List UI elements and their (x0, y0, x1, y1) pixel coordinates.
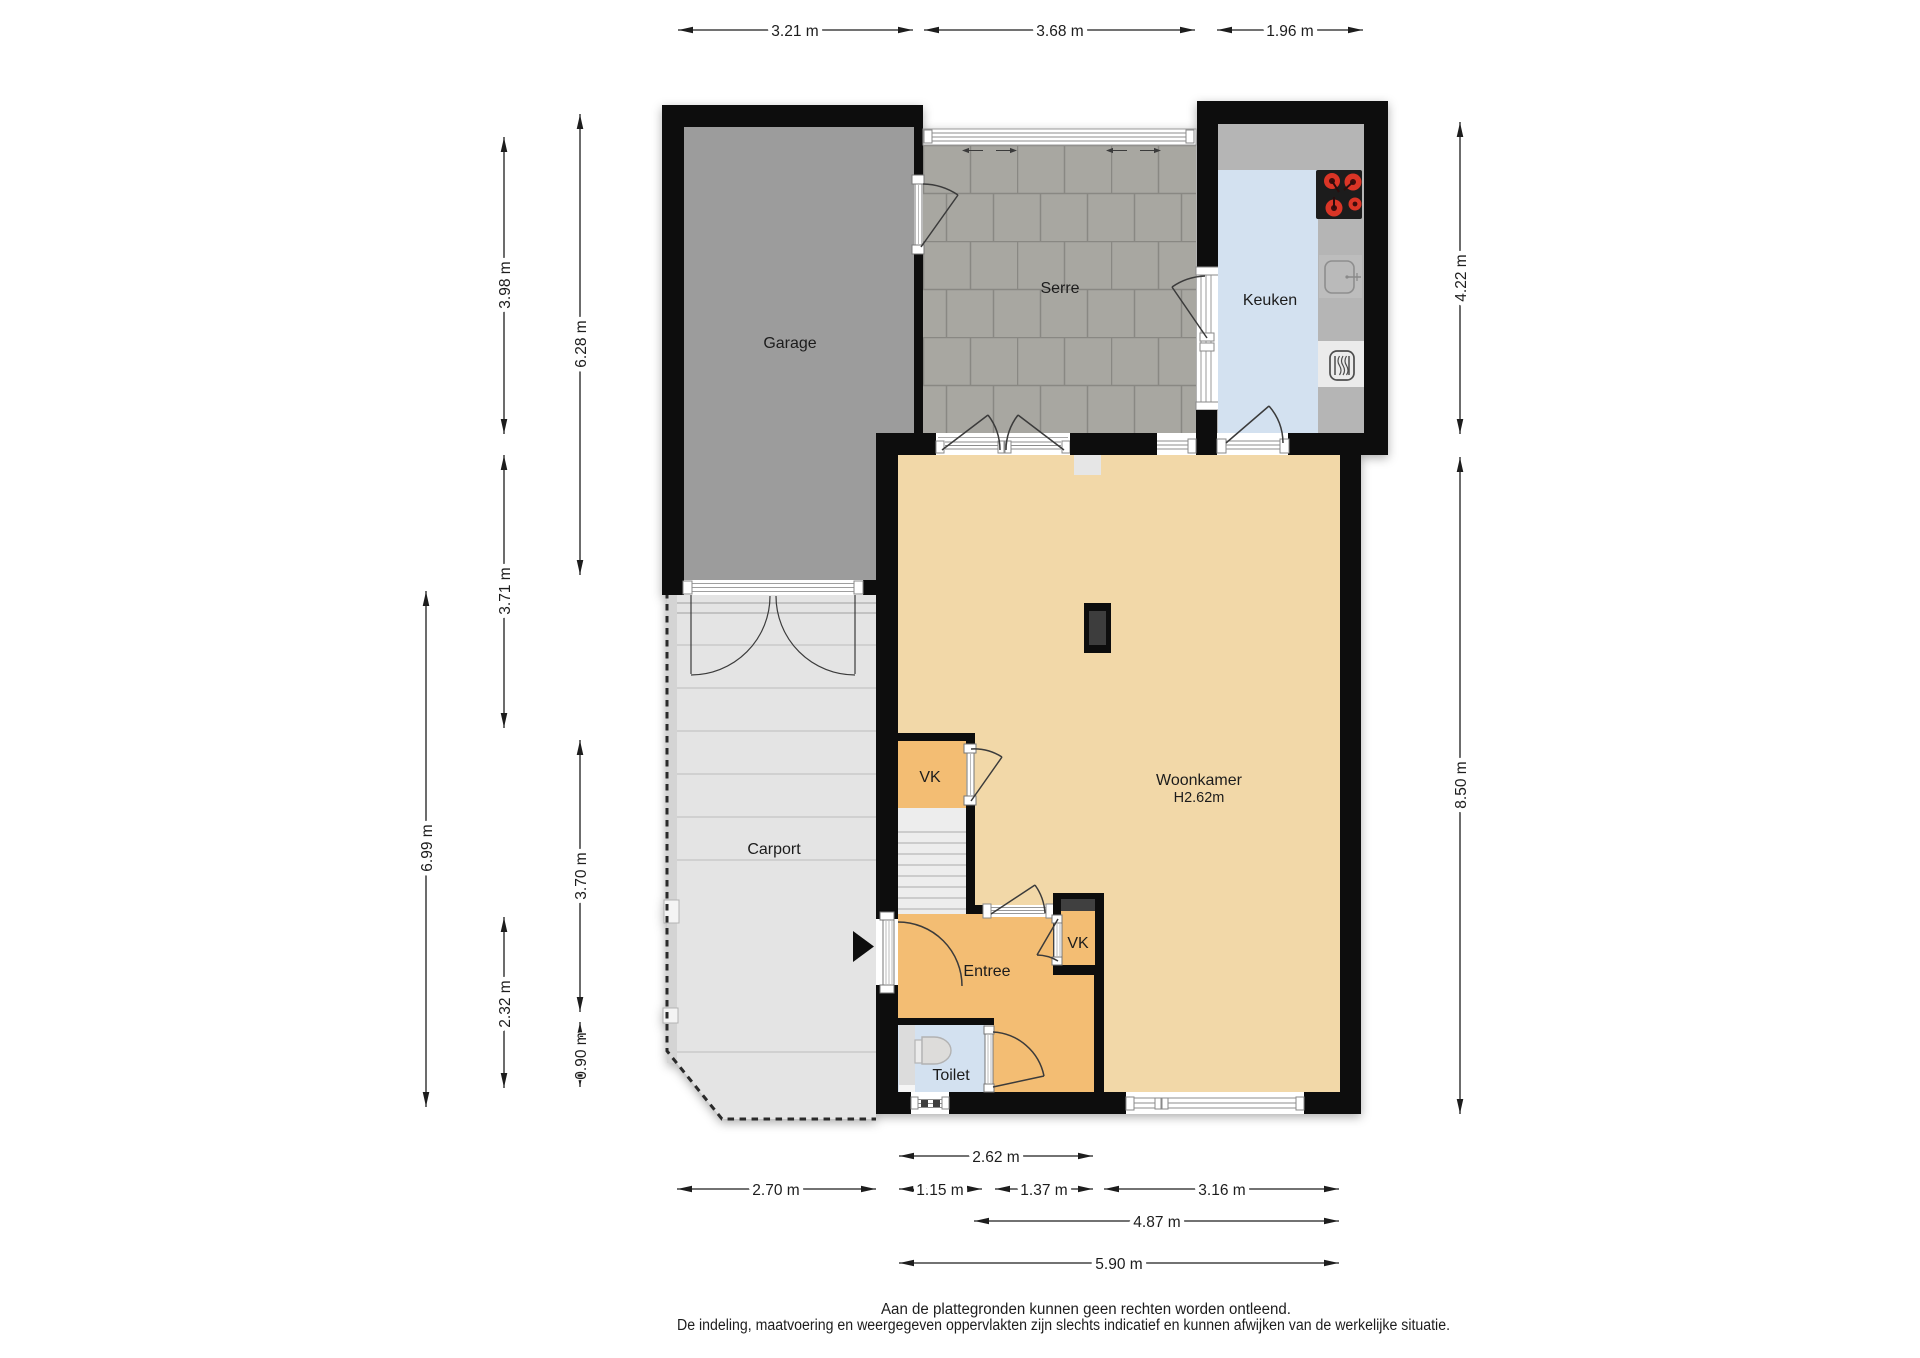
svg-text:Toilet: Toilet (932, 1067, 970, 1084)
svg-text:Aan de plattegronden kunnen ge: Aan de plattegronden kunnen geen rechten… (881, 1301, 1291, 1318)
svg-text:Serre: Serre (1040, 280, 1079, 297)
svg-text:3.68 m: 3.68 m (1036, 23, 1083, 40)
svg-text:2.70 m: 2.70 m (752, 1182, 799, 1199)
svg-text:3.70 m: 3.70 m (573, 852, 590, 899)
svg-text:1.15 m: 1.15 m (916, 1182, 963, 1199)
svg-text:H2.62m: H2.62m (1174, 790, 1225, 806)
svg-text:6.99 m: 6.99 m (419, 824, 436, 871)
svg-text:3.16 m: 3.16 m (1198, 1182, 1245, 1199)
svg-text:3.21 m: 3.21 m (771, 23, 818, 40)
svg-text:6.28 m: 6.28 m (573, 320, 590, 367)
svg-text:8.50 m: 8.50 m (1453, 761, 1470, 808)
svg-text:De indeling, maatvoering en we: De indeling, maatvoering en weergegeven … (677, 1317, 1450, 1334)
svg-text:VK: VK (1067, 935, 1089, 952)
svg-text:Woonkamer: Woonkamer (1156, 772, 1243, 789)
svg-text:5.90 m: 5.90 m (1095, 1256, 1142, 1273)
svg-text:0.90 m: 0.90 m (573, 1032, 590, 1079)
svg-text:2.32 m: 2.32 m (497, 980, 514, 1027)
svg-text:Entree: Entree (963, 963, 1010, 980)
svg-text:3.98 m: 3.98 m (497, 261, 514, 308)
svg-text:3.71 m: 3.71 m (497, 567, 514, 614)
svg-text:VK: VK (919, 769, 941, 786)
svg-text:2.62 m: 2.62 m (972, 1149, 1019, 1166)
svg-text:4.22 m: 4.22 m (1453, 254, 1470, 301)
svg-text:4.87 m: 4.87 m (1133, 1214, 1180, 1231)
svg-text:Keuken: Keuken (1243, 292, 1297, 309)
svg-text:1.96 m: 1.96 m (1266, 23, 1313, 40)
svg-text:Carport: Carport (747, 841, 801, 858)
svg-text:1.37 m: 1.37 m (1020, 1182, 1067, 1199)
svg-text:Garage: Garage (763, 335, 816, 352)
